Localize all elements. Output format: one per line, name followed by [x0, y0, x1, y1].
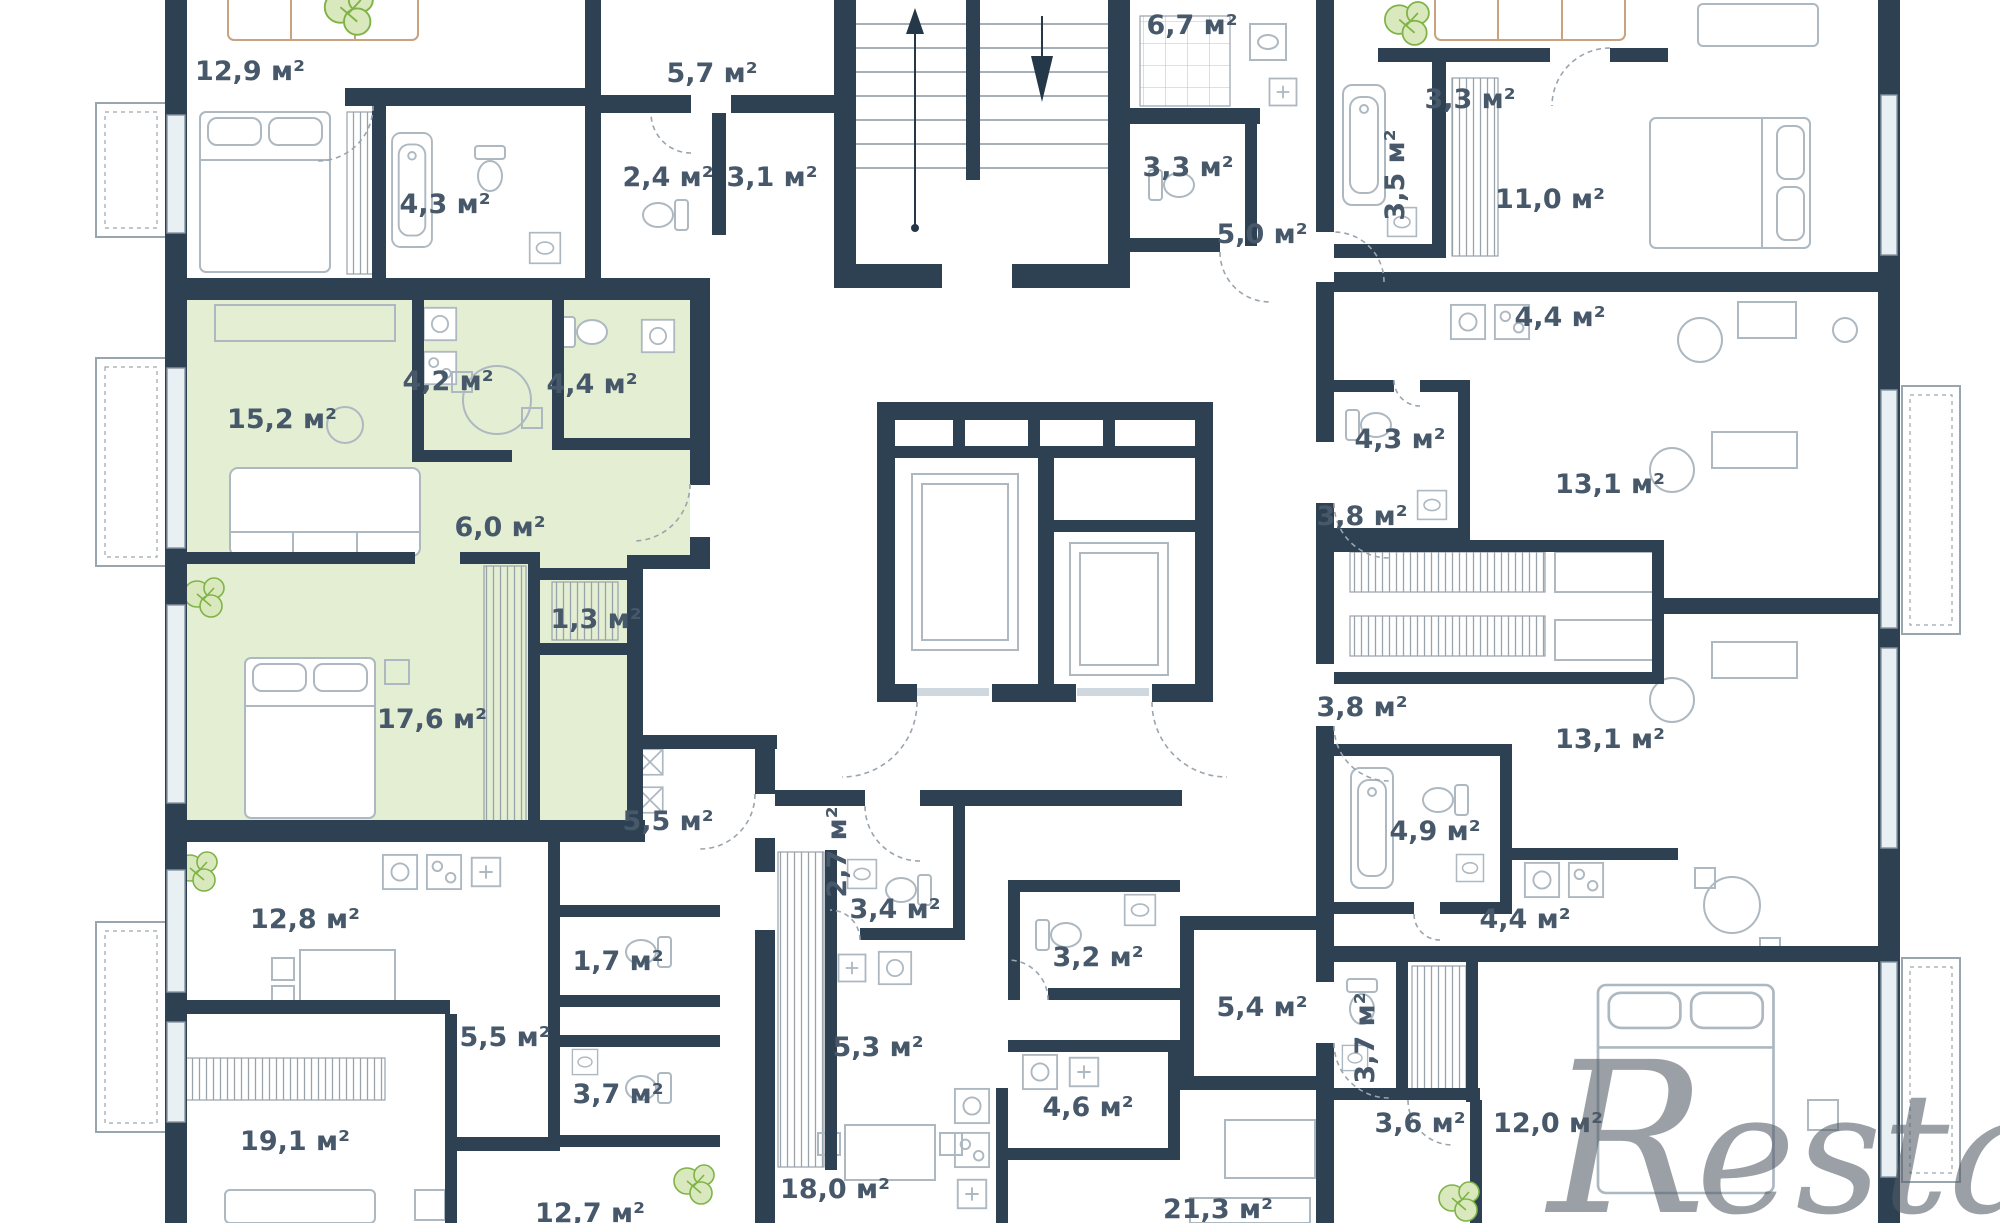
plant-icon: [1385, 2, 1429, 45]
sink-icon: [530, 233, 561, 264]
stairs-down-arrow-icon: [1031, 16, 1053, 102]
room-area-label: 3,7 м²: [572, 1079, 663, 1110]
room-area-label: 5,0 м²: [1216, 219, 1307, 250]
balcony: [96, 103, 166, 237]
room-area-label: 4,3 м²: [399, 189, 490, 220]
bed: [1650, 118, 1810, 248]
room-area-label: 4,4 м²: [1514, 302, 1605, 333]
room-area-label: 4,3 м²: [1354, 424, 1445, 455]
room-area-label: 6,7 м²: [1146, 10, 1237, 41]
sink-icon: [1250, 24, 1286, 60]
room-area-label: 3,3 м²: [1142, 152, 1233, 183]
floor-plan-page: 12,9 м² 5,7 м² 6,7 м² 3,3 м² 2,4 м² 3,1 …: [0, 0, 2000, 1223]
sofa: [228, 0, 418, 40]
bathtub-icon: [1351, 768, 1393, 888]
room-area-label: 18,0 м²: [780, 1174, 890, 1205]
laundry: [1023, 1055, 1098, 1089]
room-area-label: 11,0 м²: [1495, 184, 1605, 215]
bed: [200, 112, 330, 272]
armchair: [1650, 642, 1797, 722]
room-area-label: 3,6 м²: [1374, 1108, 1465, 1139]
room-area-label: 4,2 м²: [402, 366, 493, 397]
room-area-label: 3,4 м²: [849, 894, 940, 925]
room-area-label: 12,7 м²: [535, 1198, 645, 1223]
room-area-label: 4,9 м²: [1389, 816, 1480, 847]
toilet-icon: [643, 200, 688, 230]
room-area-label: 3,3 м²: [1424, 84, 1515, 115]
room-area-label: 5,3 м²: [832, 1032, 923, 1063]
washer-icon: [1270, 79, 1297, 106]
balcony: [96, 922, 166, 1132]
bathtub-icon: [1343, 85, 1385, 205]
side-table: [415, 1190, 445, 1220]
room-area-label: 13,1 м²: [1555, 724, 1665, 755]
round-table: [1695, 868, 1780, 958]
armchair: [1678, 302, 1857, 362]
toilet-icon: [475, 146, 505, 191]
room-area-label: 15,2 м²: [227, 404, 337, 435]
room-area-label: 5,5 м²: [622, 806, 713, 837]
washer-icon: [642, 320, 674, 352]
sofa: [1435, 0, 1625, 40]
room-area-label: 3,8 м²: [1316, 501, 1407, 532]
plant-icon: [1439, 1182, 1479, 1221]
bed: [1698, 4, 1818, 46]
sink-icon: [1418, 491, 1447, 520]
room-area-label: 5,5 м²: [459, 1022, 550, 1053]
room-area-label: 2,4 м²: [622, 162, 713, 193]
kitchen-counter: [955, 1089, 989, 1208]
sink-icon: [424, 308, 456, 340]
room-area-label: 2,7 м²: [822, 806, 853, 897]
room-area-label: 3,2 м²: [1052, 942, 1143, 973]
sink-icon: [572, 1049, 597, 1074]
room-area-label: 3,8 м²: [1316, 692, 1407, 723]
bed: [225, 1190, 375, 1223]
room-area-label: 3,7 м²: [1350, 992, 1381, 1083]
room-area-label: 12,8 м²: [250, 904, 360, 935]
room-area-label: 4,4 м²: [1479, 904, 1570, 935]
balcony: [96, 358, 166, 566]
armchair: [1650, 432, 1797, 492]
desk: [272, 950, 395, 1008]
room-area-label: 4,6 м²: [1042, 1092, 1133, 1123]
sofa: [230, 468, 420, 556]
room-area-label: 4,4 м²: [546, 369, 637, 400]
floor-plan-drawing: 12,9 м² 5,7 м² 6,7 м² 3,3 м² 2,4 м² 3,1 …: [0, 0, 2000, 1223]
staircase: [856, 8, 1108, 232]
sink-icon: [1125, 895, 1156, 926]
room-area-label: 12,9 м²: [195, 56, 305, 87]
room-area-label: 5,4 м²: [1216, 992, 1307, 1023]
dining-table: [818, 1125, 962, 1180]
toilet-icon: [1423, 785, 1468, 815]
room-area-label: 1,7 м²: [572, 946, 663, 977]
room-area-label: 6,0 м²: [454, 512, 545, 543]
room-area-label: 3,1 м²: [726, 162, 817, 193]
kitchen-counter: [383, 855, 500, 889]
room-area-label: 1,3 м²: [550, 604, 641, 635]
room-area-label: 5,7 м²: [666, 58, 757, 89]
kitchen-counter: [1525, 863, 1603, 897]
balcony: [1902, 386, 1960, 634]
room-area-label: 21,3 м²: [1163, 1194, 1273, 1223]
plant-pot: [674, 1165, 714, 1204]
room-area-label: 17,6 м²: [377, 704, 487, 735]
room-area-label: 3,5 м²: [1380, 129, 1411, 220]
laundry: [839, 952, 912, 984]
toilet-icon: [562, 317, 607, 347]
bed: [245, 658, 375, 818]
room-area-label: 13,1 м²: [1555, 469, 1665, 500]
room-area-label: 19,1 м²: [240, 1126, 350, 1157]
sink-icon: [1457, 855, 1484, 882]
